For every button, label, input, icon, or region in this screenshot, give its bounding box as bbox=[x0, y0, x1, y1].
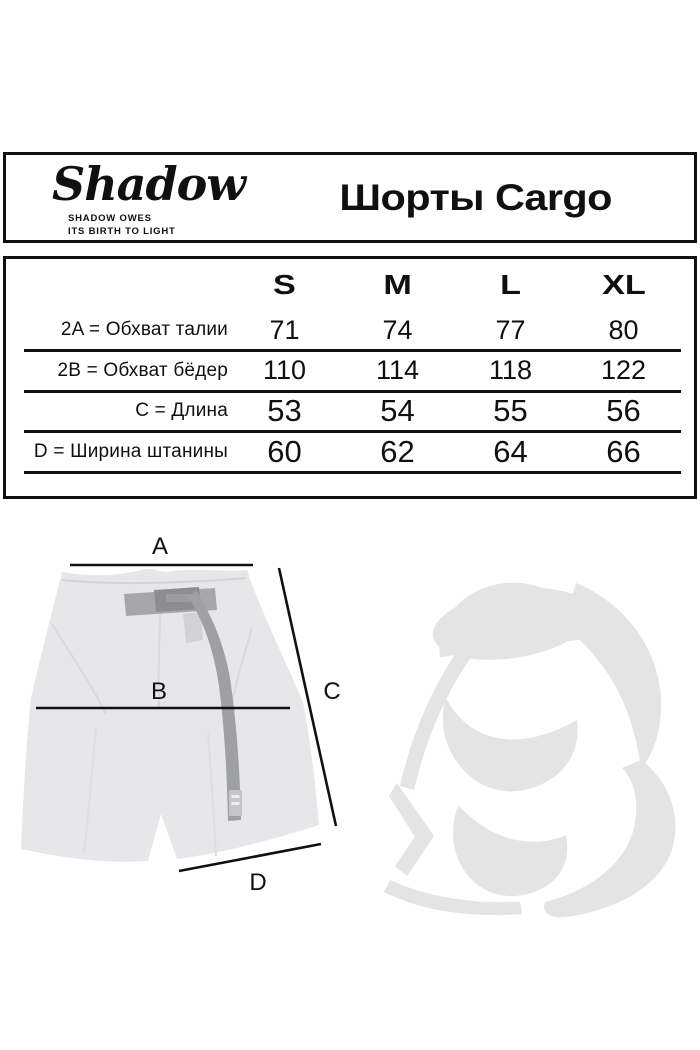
cell-value: 55 bbox=[454, 393, 567, 429]
watermark-logo bbox=[384, 578, 675, 917]
page-title: Шорты Cargo bbox=[296, 155, 656, 240]
cell-value: 54 bbox=[341, 393, 454, 429]
measurement-diagram: A B C D bbox=[0, 528, 700, 928]
strap-brand-tag bbox=[229, 790, 242, 816]
row-label: D = Ширина штанины bbox=[18, 441, 228, 463]
column-header-l: L bbox=[454, 269, 567, 301]
cell-value: 53 bbox=[228, 393, 341, 429]
column-header-xl: XL bbox=[567, 269, 680, 301]
table-row-hips: 2B = Обхват бёдер 110 114 118 122 bbox=[6, 351, 694, 392]
size-table: S M L XL 2A = Обхват талии 71 74 77 80 2… bbox=[3, 256, 697, 499]
table-row-leg-width: D = Ширина штанины 60 62 64 66 bbox=[6, 432, 694, 473]
cell-value: 118 bbox=[454, 355, 567, 386]
cell-value: 74 bbox=[341, 315, 454, 346]
cell-value: 110 bbox=[228, 355, 341, 386]
belt-buckle-slot bbox=[166, 594, 192, 602]
dimension-label-c: C bbox=[323, 678, 340, 705]
cell-value: 77 bbox=[454, 315, 567, 346]
cell-value: 60 bbox=[228, 434, 341, 470]
brand-tagline-line2: ITS BIRTH TO LIGHT bbox=[68, 225, 176, 238]
brand-tagline-line1: SHADOW OWES bbox=[68, 212, 176, 225]
cell-value: 62 bbox=[341, 434, 454, 470]
column-header-s: S bbox=[228, 269, 341, 301]
dimension-label-b: B bbox=[151, 678, 167, 705]
table-row-length: C = Длина 53 54 55 56 bbox=[6, 391, 694, 432]
size-guide-page: Shadow SHADOW OWES ITS BIRTH TO LIGHT Шо… bbox=[0, 0, 700, 1050]
dimension-label-a: A bbox=[152, 533, 168, 560]
cell-value: 114 bbox=[341, 355, 454, 386]
shorts-illustration bbox=[21, 569, 319, 862]
column-header-m: M bbox=[341, 269, 454, 301]
cell-value: 64 bbox=[454, 434, 567, 470]
table-header-row: S M L XL bbox=[6, 259, 694, 310]
row-divider bbox=[24, 471, 681, 474]
dimension-label-d: D bbox=[249, 869, 266, 896]
row-label: C = Длина bbox=[18, 400, 228, 422]
cell-value: 80 bbox=[567, 315, 680, 346]
cell-value: 122 bbox=[567, 355, 680, 386]
cell-value: 66 bbox=[567, 434, 680, 470]
row-label: 2B = Обхват бёдер bbox=[18, 360, 228, 382]
table-row-waist: 2A = Обхват талии 71 74 77 80 bbox=[6, 310, 694, 351]
cell-value: 71 bbox=[228, 315, 341, 346]
brand-logo: Shadow bbox=[52, 157, 245, 211]
cell-value: 56 bbox=[567, 393, 680, 429]
header-box: Shadow SHADOW OWES ITS BIRTH TO LIGHT Шо… bbox=[3, 152, 697, 243]
row-label: 2A = Обхват талии bbox=[18, 319, 228, 341]
brand-tagline: SHADOW OWES ITS BIRTH TO LIGHT bbox=[68, 212, 176, 239]
